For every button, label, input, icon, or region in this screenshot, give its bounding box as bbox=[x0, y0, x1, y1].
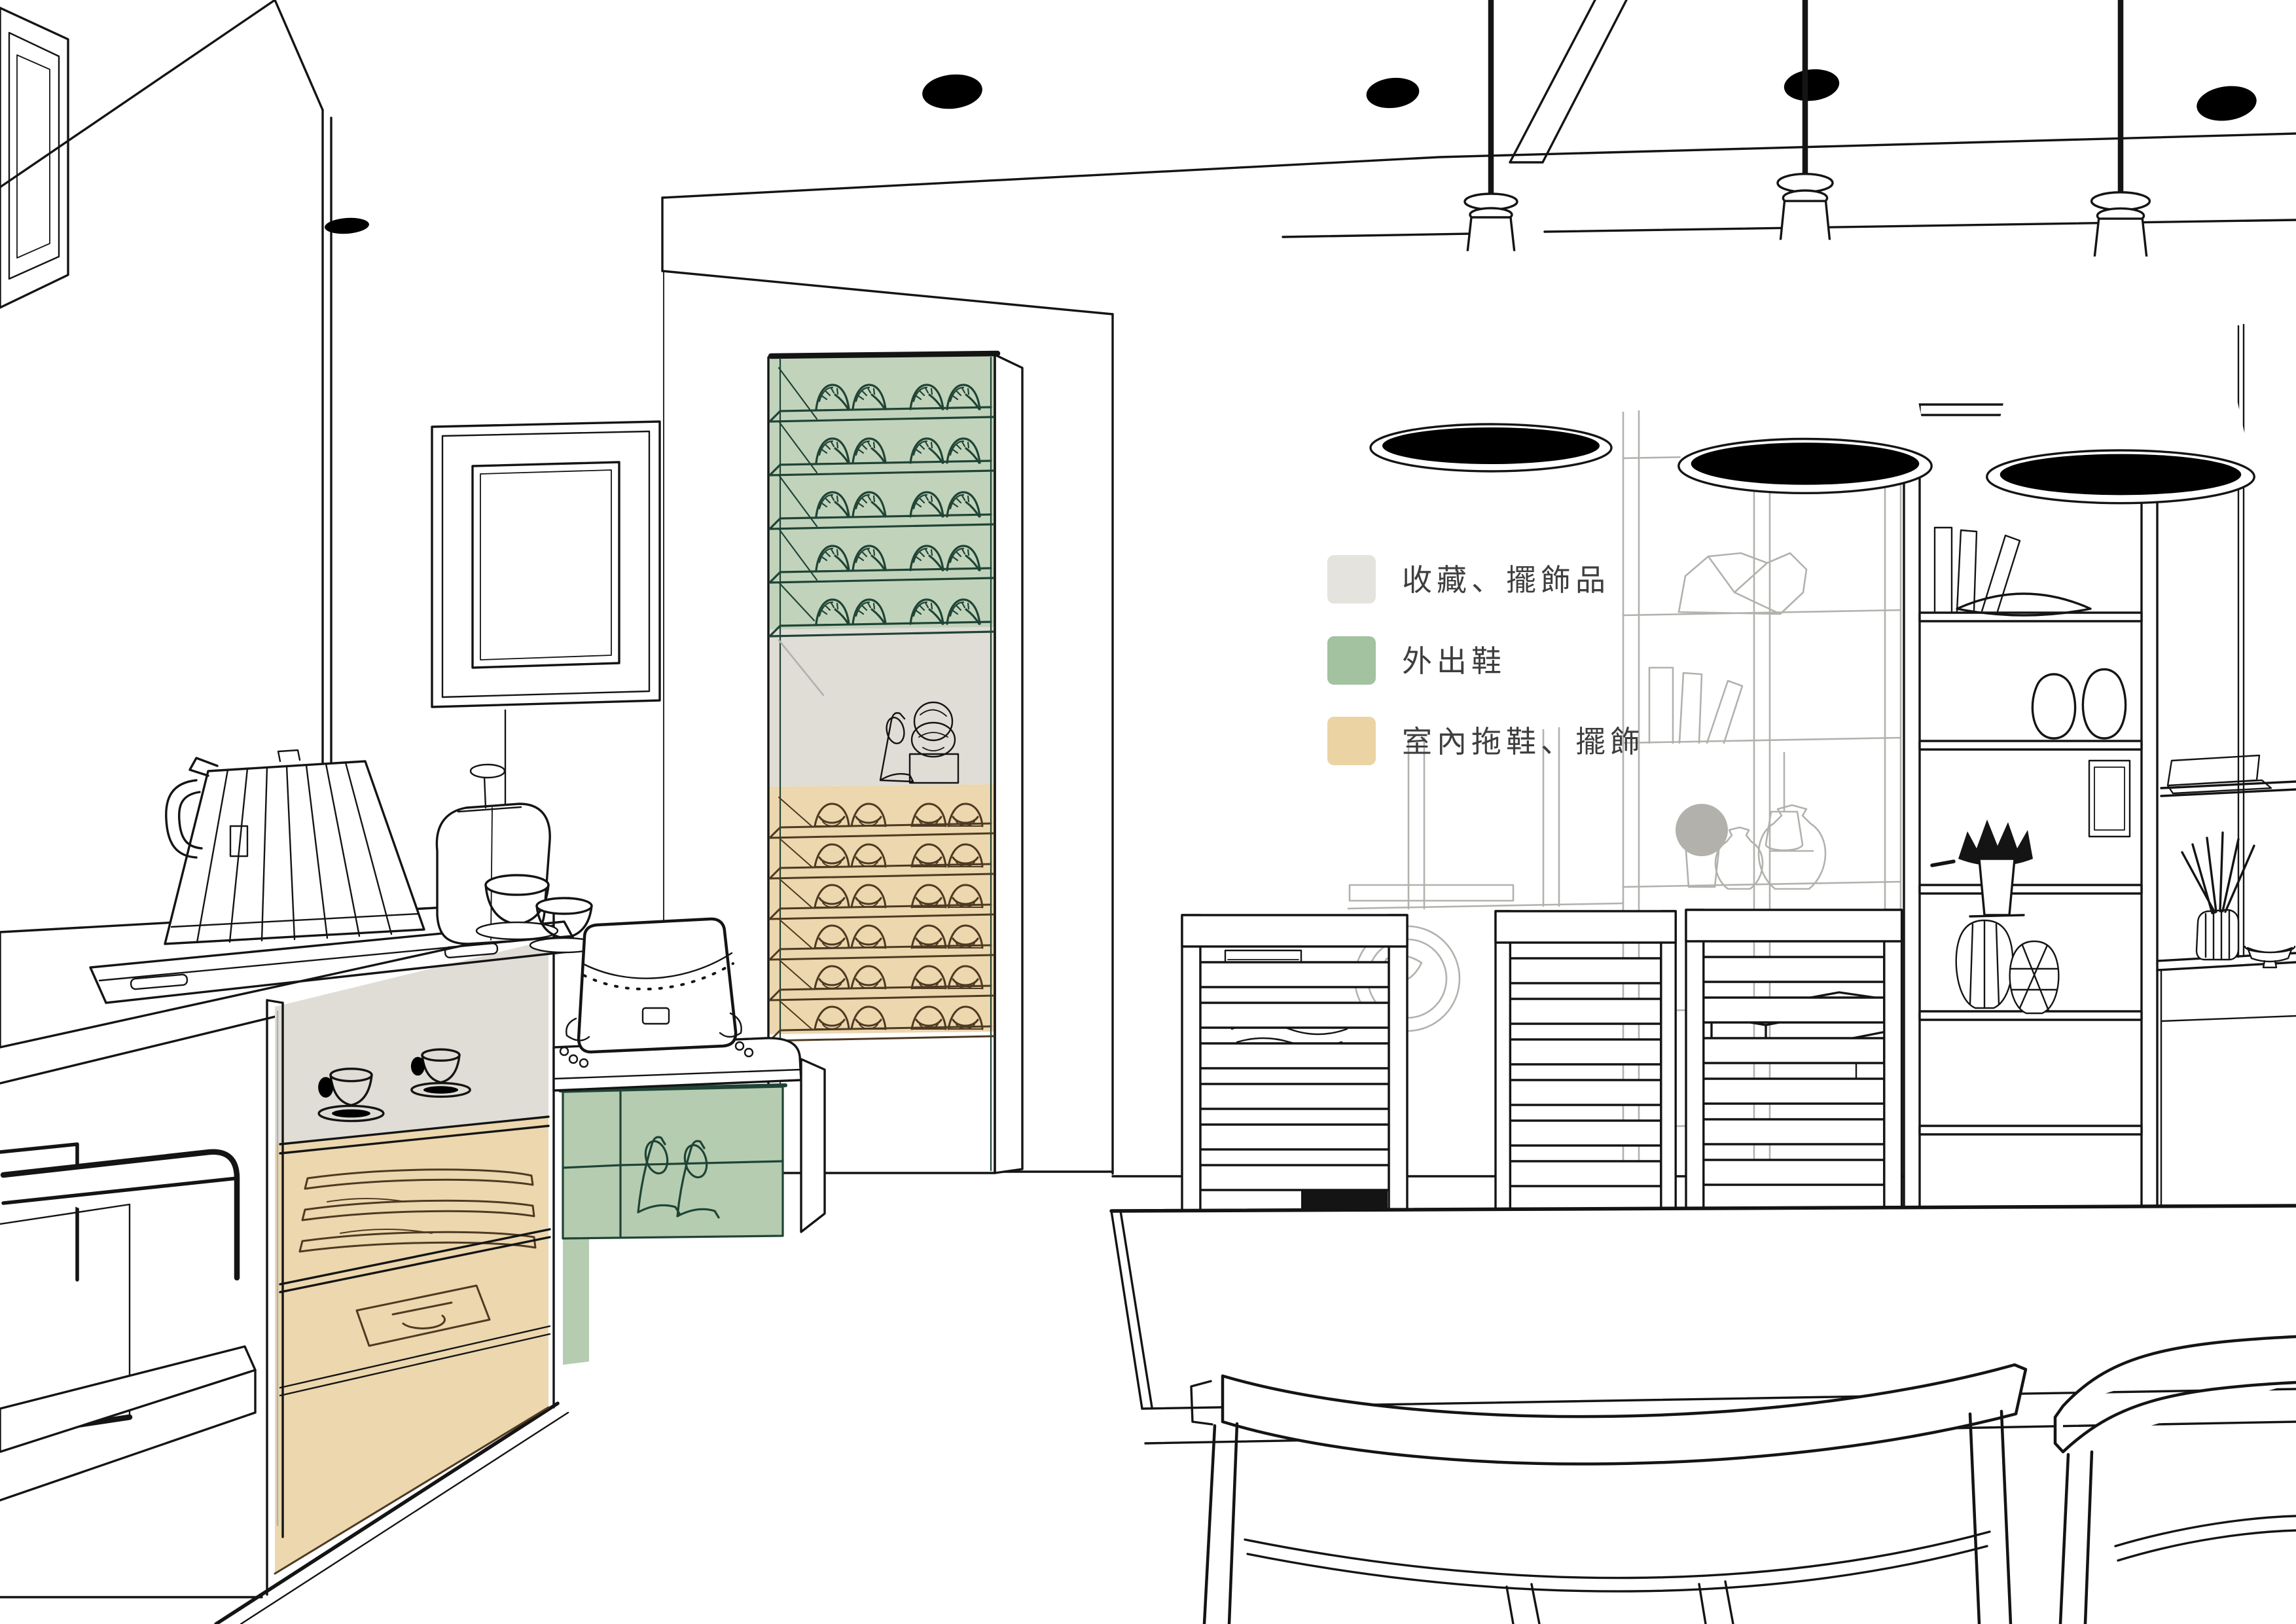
credenza-display-cabinet bbox=[267, 940, 550, 1595]
legend-swatch-indoor-slippers bbox=[1327, 717, 1376, 765]
legend-label-indoor-slippers: 室內拖鞋、擺飾 bbox=[1402, 725, 1645, 759]
ribbed-vase bbox=[1956, 920, 2013, 1008]
pendant-lamp bbox=[1987, 192, 2254, 503]
legend: 收藏、擺飾品 外出鞋 室內拖鞋、擺飾 bbox=[1327, 555, 1645, 765]
books bbox=[1935, 528, 2020, 611]
scene: 收藏、擺飾品 外出鞋 室內拖鞋、擺飾 bbox=[0, 0, 2296, 1624]
egg-vase bbox=[2032, 674, 2075, 738]
egg-vase bbox=[2083, 670, 2125, 739]
ceiling-beam bbox=[1510, 0, 1626, 162]
slat-chair bbox=[1686, 910, 1902, 1210]
legend-swatch-outdoor-shoes bbox=[1327, 636, 1376, 685]
kettle bbox=[165, 750, 424, 944]
ribbed-vase bbox=[2010, 941, 2059, 1013]
recessed-ceiling-lights bbox=[324, 67, 2259, 236]
legend-swatch-collections bbox=[1327, 555, 1376, 604]
pendant-lamp bbox=[1679, 174, 1931, 494]
dining-chairs-far bbox=[1182, 910, 1902, 1215]
low-shelf-slab bbox=[0, 1346, 255, 1452]
lamp-cords bbox=[1491, 0, 2121, 196]
far-left-picture-frame bbox=[0, 8, 68, 308]
hanging-card bbox=[2089, 761, 2130, 837]
shoe-cabinet bbox=[768, 353, 1022, 1173]
reed-diffuser bbox=[2197, 910, 2238, 960]
handbag bbox=[560, 919, 753, 1067]
bookshelf bbox=[1904, 405, 2157, 1214]
white-vase bbox=[1979, 859, 2015, 915]
bear-sculpture-sketch bbox=[1679, 553, 1806, 614]
legend-label-collections: 收藏、擺飾品 bbox=[1402, 563, 1610, 597]
storage-boxes-and-shelf bbox=[0, 1144, 255, 1500]
legend-label-outdoor-shoes: 外出鞋 bbox=[1402, 644, 1506, 678]
interior-rendering: 收藏、擺飾品 外出鞋 室內拖鞋、擺飾 bbox=[0, 0, 2296, 1624]
chair-back-left bbox=[1191, 1365, 2026, 1624]
mini-pendant-sketch bbox=[1766, 753, 1803, 850]
tray-sketch bbox=[1350, 885, 1513, 901]
wall-picture-frame bbox=[432, 422, 660, 707]
books-sketch bbox=[1649, 668, 1742, 743]
slat-chair bbox=[1496, 911, 1676, 1211]
